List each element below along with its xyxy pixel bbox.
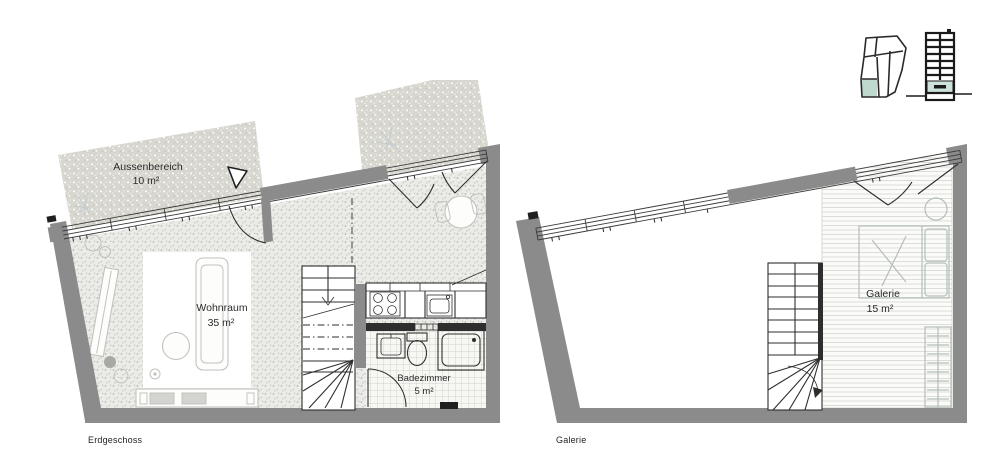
stair: [768, 263, 823, 410]
stair-flank-wall: [818, 263, 823, 360]
floorplan-galerie: Galerie 15 m² Galerie: [516, 144, 967, 445]
bath-name-label: Badezimmer: [397, 373, 450, 384]
gallery-name-label: Galerie: [866, 288, 900, 300]
outdoor-area-label: 10 m²: [133, 175, 160, 187]
gallery-floor: [822, 152, 952, 408]
bathroom: Badezimmer 5 m²: [366, 323, 486, 409]
floorplan-sheet: Badezimmer 5 m² Aussenbereich 10 m² Wohn…: [0, 0, 1000, 460]
plant-dark: [104, 356, 116, 368]
building-section-icon: [906, 29, 972, 100]
caption-galerie: Galerie: [556, 435, 586, 445]
bath-wall: [366, 323, 415, 331]
core-wall: [355, 284, 366, 368]
stair: [302, 266, 355, 410]
coffee-table: [163, 333, 190, 360]
bath-area-label: 5 m²: [415, 386, 434, 397]
floorplan-erdgeschoss: Badezimmer 5 m² Aussenbereich 10 m² Wohn…: [47, 80, 500, 445]
site-highlighted-unit: [862, 79, 877, 97]
living-name-label: Wohnraum: [196, 302, 247, 314]
site-plan-icon: [861, 36, 906, 97]
gallery-area-label: 15 m²: [867, 303, 894, 315]
outdoor-name-label: Aussenbereich: [113, 161, 183, 173]
sideboard: [136, 389, 258, 407]
caption-erdgeschoss: Erdgeschoss: [88, 435, 143, 445]
living-area-label: 35 m²: [208, 317, 235, 329]
keyplan: [861, 29, 972, 100]
floorplan-canvas: Badezimmer 5 m² Aussenbereich 10 m² Wohn…: [0, 0, 1000, 460]
